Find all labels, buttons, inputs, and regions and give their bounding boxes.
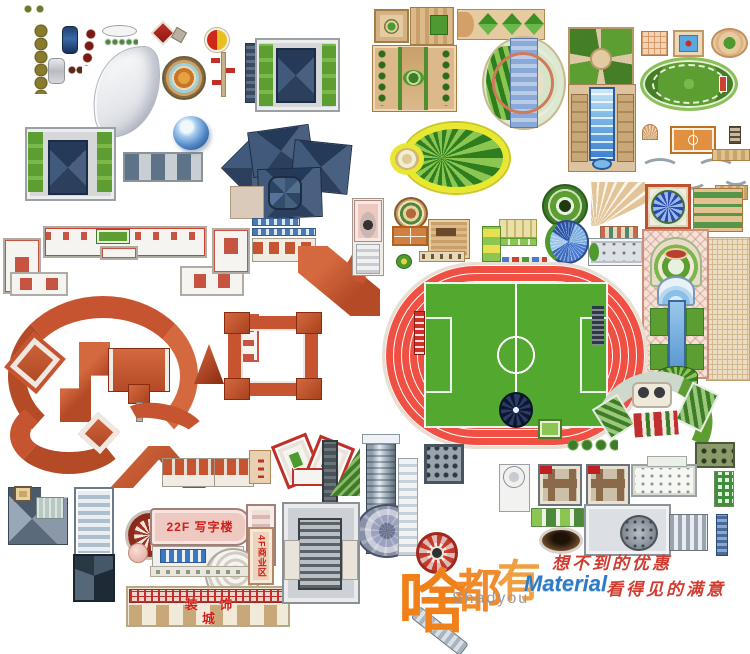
blue-ribbed-slab	[716, 514, 728, 556]
classical-a-roof	[48, 140, 88, 195]
campus-wing-b	[10, 272, 68, 296]
gray-panel	[36, 497, 64, 519]
shrub-pair	[22, 4, 46, 14]
fan-seats-small	[642, 124, 658, 140]
mini-car-column	[79, 27, 99, 67]
blue-fan-dome	[545, 220, 589, 264]
red-roof-triangle	[194, 344, 224, 384]
blue-dome	[173, 116, 209, 150]
gray-tower-wing-left	[284, 540, 300, 580]
pole-flag-2	[226, 68, 235, 73]
dark-slab-building	[322, 440, 338, 506]
terrace-building-2	[214, 458, 254, 487]
courtyard-corner-4	[296, 378, 322, 400]
watermark-brand-char-3: 有	[497, 545, 541, 609]
car-blue	[62, 26, 78, 54]
bench-long	[419, 251, 465, 262]
tree-row-bottom	[566, 439, 618, 451]
green-window-slab	[714, 471, 734, 507]
river-arc-4	[722, 166, 750, 186]
gray-tower-core	[298, 518, 342, 590]
wheel-plaza	[162, 56, 206, 100]
dark-grid-item	[729, 126, 741, 144]
banner-fan	[458, 12, 474, 37]
tower-red-logo-2	[588, 466, 600, 474]
watermark-brand-char-2: 都	[456, 555, 502, 621]
cascade-pool	[592, 158, 612, 170]
plaza-square-center	[384, 19, 399, 34]
bench-green-strip	[499, 238, 537, 246]
courtyard-corner-1	[224, 312, 250, 334]
classical-a-lawn-left	[28, 132, 43, 192]
arc-pavilion-dot-1	[638, 387, 649, 398]
pink-park-lawn-1	[650, 308, 668, 336]
navy-fan-disc	[499, 392, 533, 428]
cone-pair	[68, 64, 82, 76]
basketball-court	[670, 126, 716, 154]
circus-center	[430, 546, 444, 560]
bench-rows-green	[531, 508, 584, 527]
pink-park-canal	[668, 300, 686, 370]
yellow-ring-circle	[390, 143, 424, 175]
classical-b-roof	[276, 48, 316, 103]
hangar-vent-circle	[620, 515, 658, 551]
pier-bench	[436, 228, 456, 236]
watermark-brand-en: Shadyou	[452, 590, 529, 608]
blue-strip-2	[252, 228, 316, 236]
formal-trees-right	[440, 48, 452, 106]
tan-sign-building	[249, 450, 271, 484]
formal-trees-left	[376, 48, 388, 106]
pink-park-red-oval	[664, 248, 688, 260]
pole-flag-3	[212, 80, 221, 85]
office-tower-slab: 22F 写字楼	[150, 508, 250, 546]
tan-grid-mat	[706, 237, 750, 381]
classical-a-lawn-right	[97, 132, 112, 192]
hangar-ribbed-annex	[669, 514, 708, 551]
slab-glass-tower	[74, 487, 114, 557]
office-base-strip	[150, 566, 250, 577]
blue-complex-terrace	[230, 186, 264, 219]
tree-row	[33, 24, 49, 94]
gold-roof-tower	[14, 486, 32, 502]
white-round-tower-cap	[503, 466, 525, 488]
pendant-charm	[171, 27, 187, 43]
buoy-row	[104, 38, 138, 47]
yinyang-sign	[205, 28, 229, 52]
kindergarten-sign	[719, 76, 727, 92]
tower-red-logo-1	[540, 466, 552, 474]
car-white	[48, 58, 65, 84]
commercial-4f-building: 4F商业区	[248, 527, 274, 585]
campus-mid-extension	[100, 246, 138, 260]
track-stand-red	[414, 311, 425, 355]
boat-small	[102, 25, 137, 37]
colonnade-building	[631, 464, 697, 497]
ornate-tower-ribs	[356, 244, 380, 274]
sign-pole	[221, 52, 226, 97]
stadium-ring	[492, 52, 554, 114]
cascade-wing-right	[617, 94, 634, 162]
track-stand-dark	[592, 306, 604, 346]
bench-grid-tan	[499, 219, 537, 238]
quad-park-center	[590, 48, 612, 70]
pink-park-lawn-3	[650, 344, 668, 370]
grid-plaza-small	[641, 31, 668, 56]
colonnade-wing	[647, 456, 687, 467]
cascade-wing-left	[571, 94, 588, 162]
formal-garden-center	[403, 70, 424, 86]
blue-complex-octagon	[268, 176, 302, 210]
round-plaza-small	[711, 28, 748, 58]
waffle-building	[424, 444, 464, 484]
courtyard-corner-2	[296, 312, 322, 334]
ornate-tower-oval	[360, 212, 376, 238]
blue-strip-1	[252, 218, 300, 226]
campus-courtyard	[96, 229, 130, 244]
campus-wing-d	[212, 228, 250, 274]
pool-plaza-water	[679, 35, 698, 52]
skyscraper-cap	[362, 434, 400, 444]
classical-b-lawn-right	[322, 44, 336, 106]
arc-pavilion-dot-2	[654, 387, 665, 398]
pole-flag-1	[211, 58, 220, 63]
escalator-ramp	[411, 606, 469, 654]
palace-green-end	[589, 243, 599, 261]
classical-b-lawn-left	[259, 44, 273, 106]
cascade-waterfall	[589, 87, 615, 161]
garden-strip-lawn	[430, 15, 448, 35]
small-green-building	[538, 419, 562, 439]
watermark-slogan-line-2: 看得见的满意	[606, 575, 726, 600]
watermark-material-logo: Material	[524, 571, 607, 597]
plank-strip-1	[712, 149, 750, 161]
red-garden-structure	[633, 410, 679, 437]
slab-hip-roof	[73, 554, 115, 602]
strip-mall-sign-text: 装 饰 城	[168, 603, 258, 621]
mini-green-circle	[396, 254, 412, 269]
schedule-table	[693, 188, 743, 232]
courtyard-corner-3	[224, 378, 250, 400]
pink-park-lawn-2	[686, 308, 704, 336]
fan-walkways	[591, 182, 645, 226]
pinwheel-flower	[651, 190, 685, 224]
tennis-courts	[392, 226, 428, 246]
pink-ball	[128, 543, 148, 563]
sail-structure	[88, 45, 167, 140]
rowhouse-strip	[123, 152, 203, 182]
brown-bowl-amphitheater	[539, 527, 583, 554]
small-tower	[128, 384, 150, 404]
oval-park-path	[652, 64, 726, 104]
gray-tower-wing-right	[342, 540, 358, 580]
office-window-grid	[160, 549, 206, 563]
penalty-box-left	[424, 317, 452, 393]
pink-park-lawn-4	[686, 344, 704, 370]
block-green-yellow	[482, 226, 501, 262]
white-tower-slab	[398, 458, 418, 556]
green-dotted-item	[695, 442, 735, 468]
asset-sheet-canvas: 22F 写字楼4F商业区装 饰 城 啥 都 有 Shadyou Material…	[0, 0, 750, 654]
